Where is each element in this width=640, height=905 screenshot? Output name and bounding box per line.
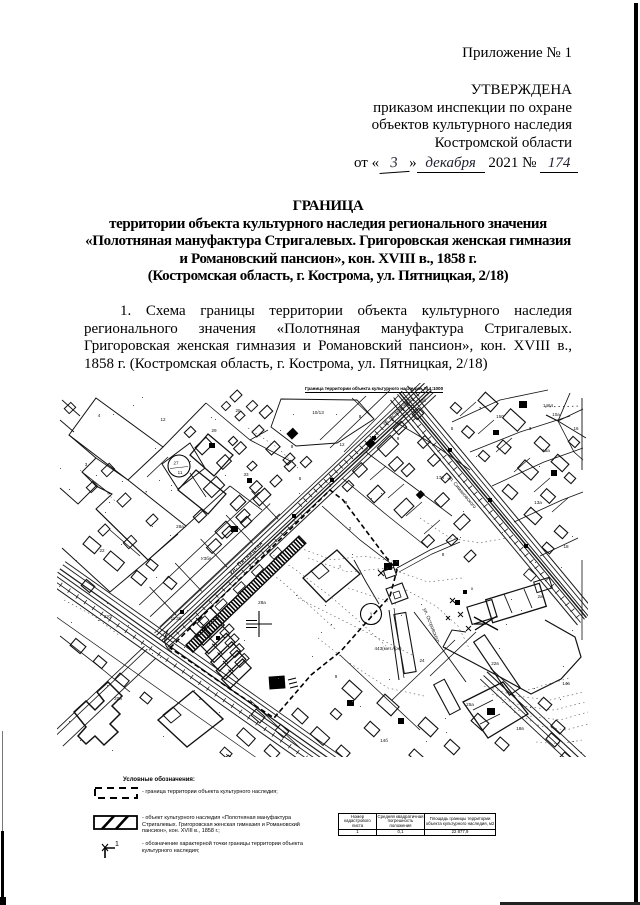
svg-text:28а: 28а	[258, 600, 266, 605]
svg-text:8: 8	[291, 444, 294, 449]
svg-text:2: 2	[349, 526, 352, 531]
svg-text:16: 16	[573, 426, 579, 431]
svg-text:14б: 14б	[380, 738, 388, 743]
svg-text:150: 150	[496, 414, 504, 419]
svg-text:14в: 14в	[562, 681, 570, 686]
svg-text:18: 18	[563, 544, 569, 549]
svg-text:12: 12	[339, 442, 345, 447]
svg-text:2а: 2а	[537, 594, 543, 599]
svg-text:т: т	[339, 564, 342, 569]
svg-text:х: х	[471, 586, 474, 591]
svg-text:22: 22	[99, 548, 105, 553]
svg-text:17а: 17а	[436, 475, 444, 480]
svg-text:10б: 10б	[418, 398, 426, 403]
svg-text:6: 6	[387, 557, 390, 562]
svg-text:2УЗ: 2УЗ	[104, 614, 112, 619]
svg-text:8: 8	[442, 552, 445, 557]
svg-text:20а: 20а	[114, 696, 122, 701]
svg-text:10/13: 10/13	[312, 410, 324, 415]
svg-text:3: 3	[529, 426, 532, 431]
svg-text:1УЗб: 1УЗб	[171, 616, 182, 621]
svg-text:7: 7	[145, 490, 148, 495]
svg-text:1464: 1464	[543, 403, 554, 408]
svg-text:12: 12	[160, 417, 166, 422]
svg-text:2: 2	[199, 696, 202, 701]
svg-text:3: 3	[345, 500, 348, 505]
svg-text:3: 3	[85, 462, 88, 467]
svg-text:4: 4	[98, 413, 101, 418]
svg-text:27: 27	[173, 461, 179, 466]
svg-text:25а: 25а	[466, 702, 474, 707]
svg-text:5: 5	[299, 476, 302, 481]
svg-text:2: 2	[329, 483, 332, 488]
svg-text:5: 5	[451, 426, 454, 431]
svg-text:9: 9	[335, 674, 338, 679]
svg-text:22в: 22в	[491, 661, 499, 666]
svg-text:УЗбл: УЗбл	[201, 556, 212, 561]
svg-text:11: 11	[178, 470, 183, 475]
svg-text:25: 25	[235, 408, 241, 413]
svg-text:18в: 18в	[516, 726, 524, 731]
svg-text:29: 29	[211, 428, 217, 433]
svg-text:15а: 15а	[542, 448, 550, 453]
svg-text:8: 8	[359, 414, 362, 419]
svg-text:33: 33	[243, 472, 249, 477]
svg-text:1: 1	[370, 613, 373, 619]
svg-text:1: 1	[276, 712, 279, 717]
svg-text:24: 24	[419, 658, 425, 663]
svg-text:13а: 13а	[534, 500, 542, 505]
svg-text:10а: 10а	[552, 412, 560, 417]
svg-text:1: 1	[115, 841, 119, 848]
svg-text:28а: 28а	[176, 524, 184, 529]
svg-text:443(мет.Арх): 443(мет.Арх)	[374, 646, 401, 651]
svg-text:9: 9	[397, 436, 400, 441]
svg-text:7: 7	[479, 406, 482, 411]
